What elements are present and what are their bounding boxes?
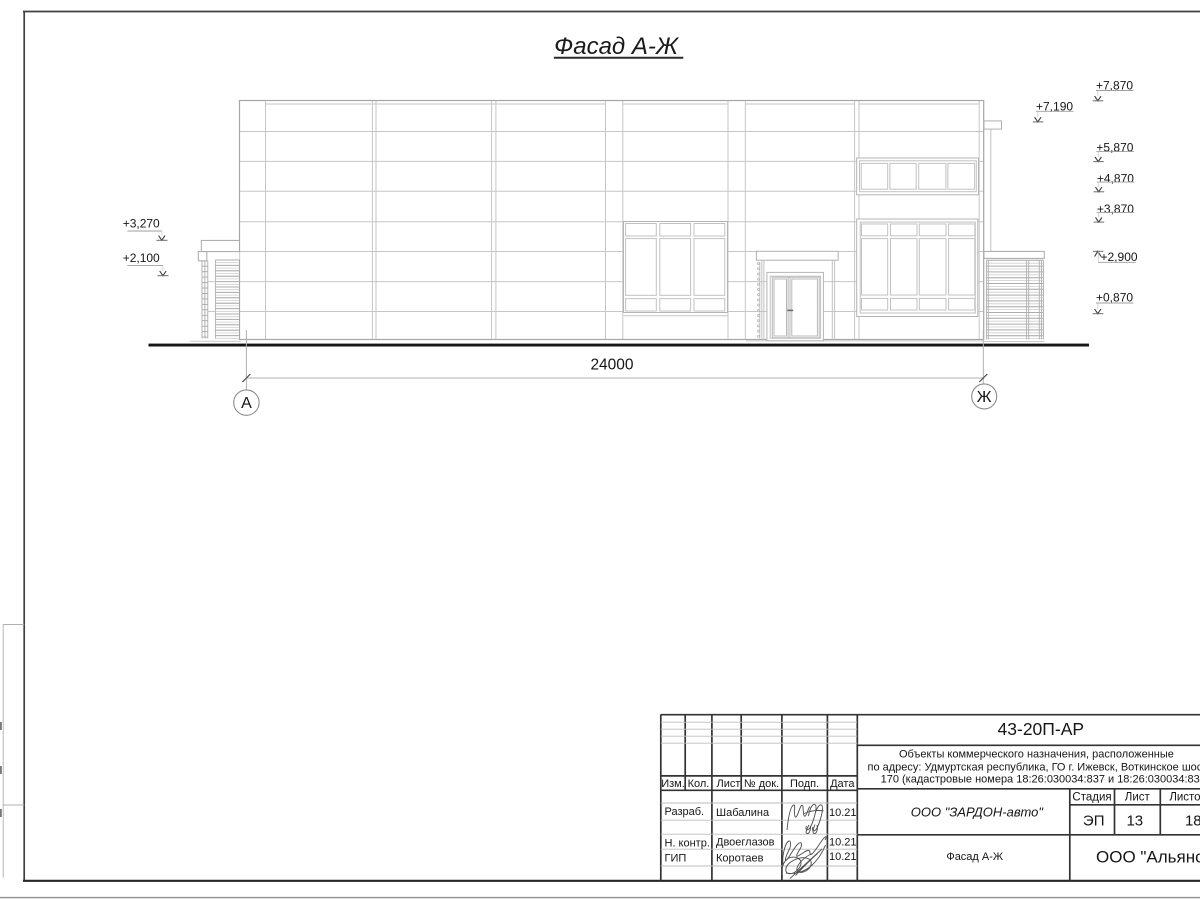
svg-text:Дата: Дата xyxy=(830,778,855,790)
svg-text:10.21: 10.21 xyxy=(829,807,857,819)
svg-text:Двоеглазов: Двоеглазов xyxy=(716,837,775,849)
svg-text:+2,900: +2,900 xyxy=(1101,250,1138,264)
svg-text:№ док.: № док. xyxy=(744,778,779,790)
svg-text:+5,870: +5,870 xyxy=(1096,141,1133,155)
svg-text:10.21: 10.21 xyxy=(829,851,857,863)
svg-text:Лист: Лист xyxy=(1125,792,1151,804)
svg-text:Разраб.: Разраб. xyxy=(665,806,705,818)
svg-text:Листов: Листов xyxy=(1169,792,1200,804)
svg-text:18: 18 xyxy=(1185,813,1200,830)
svg-text:Подп.: Подп. xyxy=(790,778,819,790)
svg-text:+3,870: +3,870 xyxy=(1097,202,1134,216)
svg-text:+3,270: +3,270 xyxy=(123,216,160,230)
svg-text:10.21: 10.21 xyxy=(829,836,857,848)
svg-text:ООО "Альянс": ООО "Альянс" xyxy=(1096,848,1200,867)
svg-text:А: А xyxy=(241,395,252,412)
svg-text:ГИП: ГИП xyxy=(665,853,687,865)
svg-text:24000: 24000 xyxy=(590,357,633,374)
svg-text:Объекты коммерческого назначен: Объекты коммерческого назначения, распол… xyxy=(899,749,1174,761)
svg-text:43-20П-АР: 43-20П-АР xyxy=(998,719,1085,739)
svg-text:Н. контр.: Н. контр. xyxy=(665,838,710,850)
svg-text:Фасад А-Ж: Фасад А-Ж xyxy=(946,851,1003,863)
svg-text:Кол.: Кол. xyxy=(688,778,710,790)
svg-text:Шабалина: Шабалина xyxy=(716,807,770,819)
svg-text:Ж: Ж xyxy=(977,389,992,406)
svg-text:170 (кадастровые номера 18:26:: 170 (кадастровые номера 18:26:030034:837… xyxy=(881,773,1200,785)
svg-text:Коротаев: Коротаев xyxy=(716,853,764,865)
svg-text:Изм.: Изм. xyxy=(661,778,685,790)
svg-text:Фасад А-Ж: Фасад А-Ж xyxy=(554,33,680,60)
svg-text:+2,100: +2,100 xyxy=(123,251,160,265)
svg-text:по адресу: Удмуртская республи: по адресу: Удмуртская республика, ГО г. … xyxy=(868,762,1200,774)
svg-text:13: 13 xyxy=(1126,813,1143,830)
svg-text:Лист: Лист xyxy=(717,778,741,790)
svg-text:+4,870: +4,870 xyxy=(1097,172,1134,186)
svg-text:Стадия: Стадия xyxy=(1072,792,1111,804)
svg-text:ООО "ЗАРДОН-авто": ООО "ЗАРДОН-авто" xyxy=(911,804,1045,819)
svg-text:ЭП: ЭП xyxy=(1083,813,1105,830)
